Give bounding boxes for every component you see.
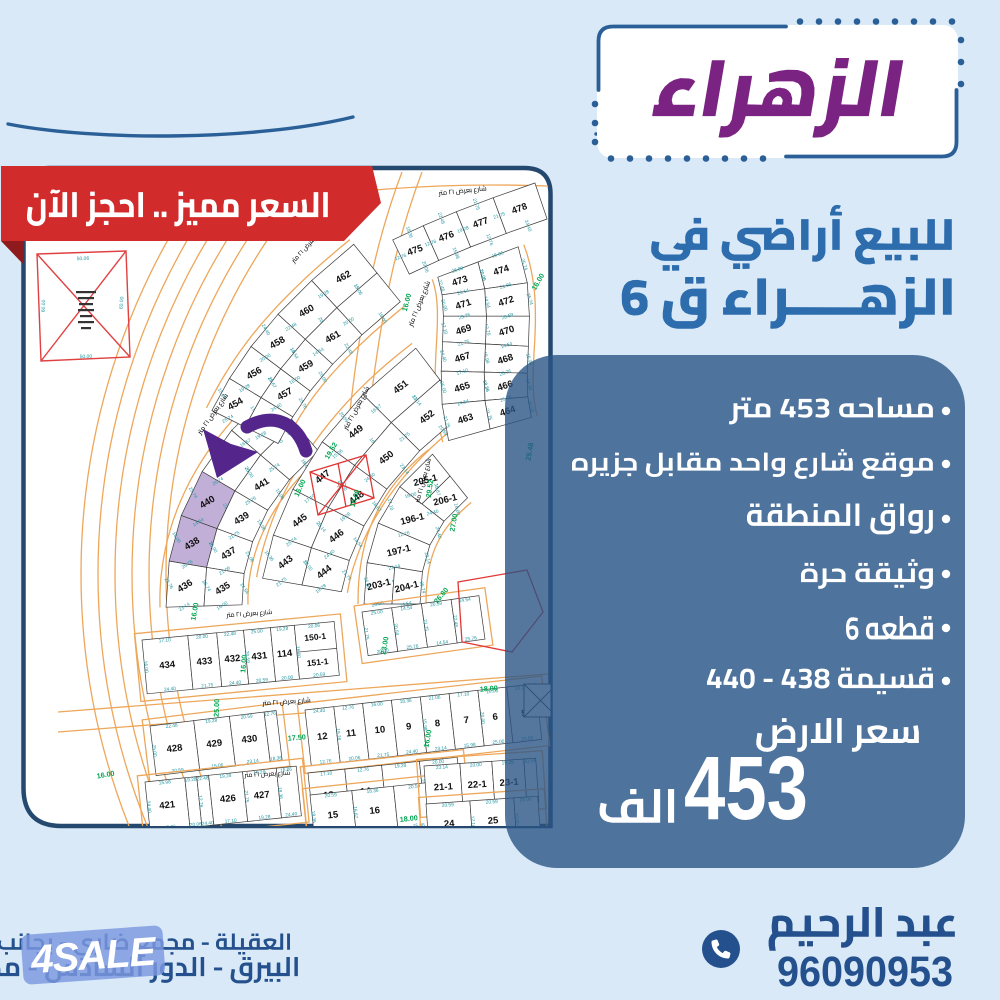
svg-text:20.59: 20.59 (442, 802, 455, 809)
svg-text:427: 427 (253, 789, 270, 802)
svg-text:25: 25 (487, 815, 499, 827)
svg-text:426: 426 (219, 793, 236, 806)
svg-text:22-1: 22-1 (467, 779, 487, 791)
svg-text:428: 428 (166, 742, 183, 755)
svg-text:60.00: 60.00 (118, 296, 125, 309)
svg-text:16: 16 (369, 805, 381, 817)
svg-text:16.00: 16.00 (238, 654, 249, 673)
svg-text:433: 433 (196, 656, 213, 669)
svg-text:4SALE: 4SALE (29, 930, 159, 983)
svg-text:15: 15 (327, 809, 339, 821)
svg-text:11: 11 (346, 728, 358, 740)
svg-text:12: 12 (317, 731, 329, 743)
svg-text:20.00: 20.00 (470, 762, 483, 769)
svg-text:430: 430 (241, 733, 258, 746)
svg-text:10: 10 (374, 724, 386, 736)
svg-text:96090953: 96090953 (777, 948, 953, 996)
svg-text:50.06: 50.06 (77, 256, 90, 262)
svg-text:431: 431 (251, 650, 269, 663)
svg-text:453: 453 (684, 739, 808, 839)
svg-text:20.59: 20.59 (486, 799, 499, 806)
svg-text:421: 421 (159, 799, 177, 812)
svg-text:114: 114 (276, 648, 293, 661)
svg-text:18.00: 18.00 (479, 683, 498, 694)
svg-text:25.00: 25.00 (212, 699, 222, 717)
svg-text:9: 9 (406, 721, 412, 732)
svg-text:429: 429 (206, 738, 223, 751)
svg-text:18.00: 18.00 (399, 813, 418, 824)
svg-text:17.50: 17.50 (287, 732, 306, 743)
svg-text:6: 6 (492, 711, 498, 722)
svg-text:21-1: 21-1 (433, 781, 453, 793)
svg-text:434: 434 (159, 659, 177, 672)
svg-text:60.00: 60.00 (41, 299, 47, 312)
svg-text:50.00: 50.00 (80, 354, 93, 360)
svg-text:23.14: 23.14 (436, 764, 449, 771)
